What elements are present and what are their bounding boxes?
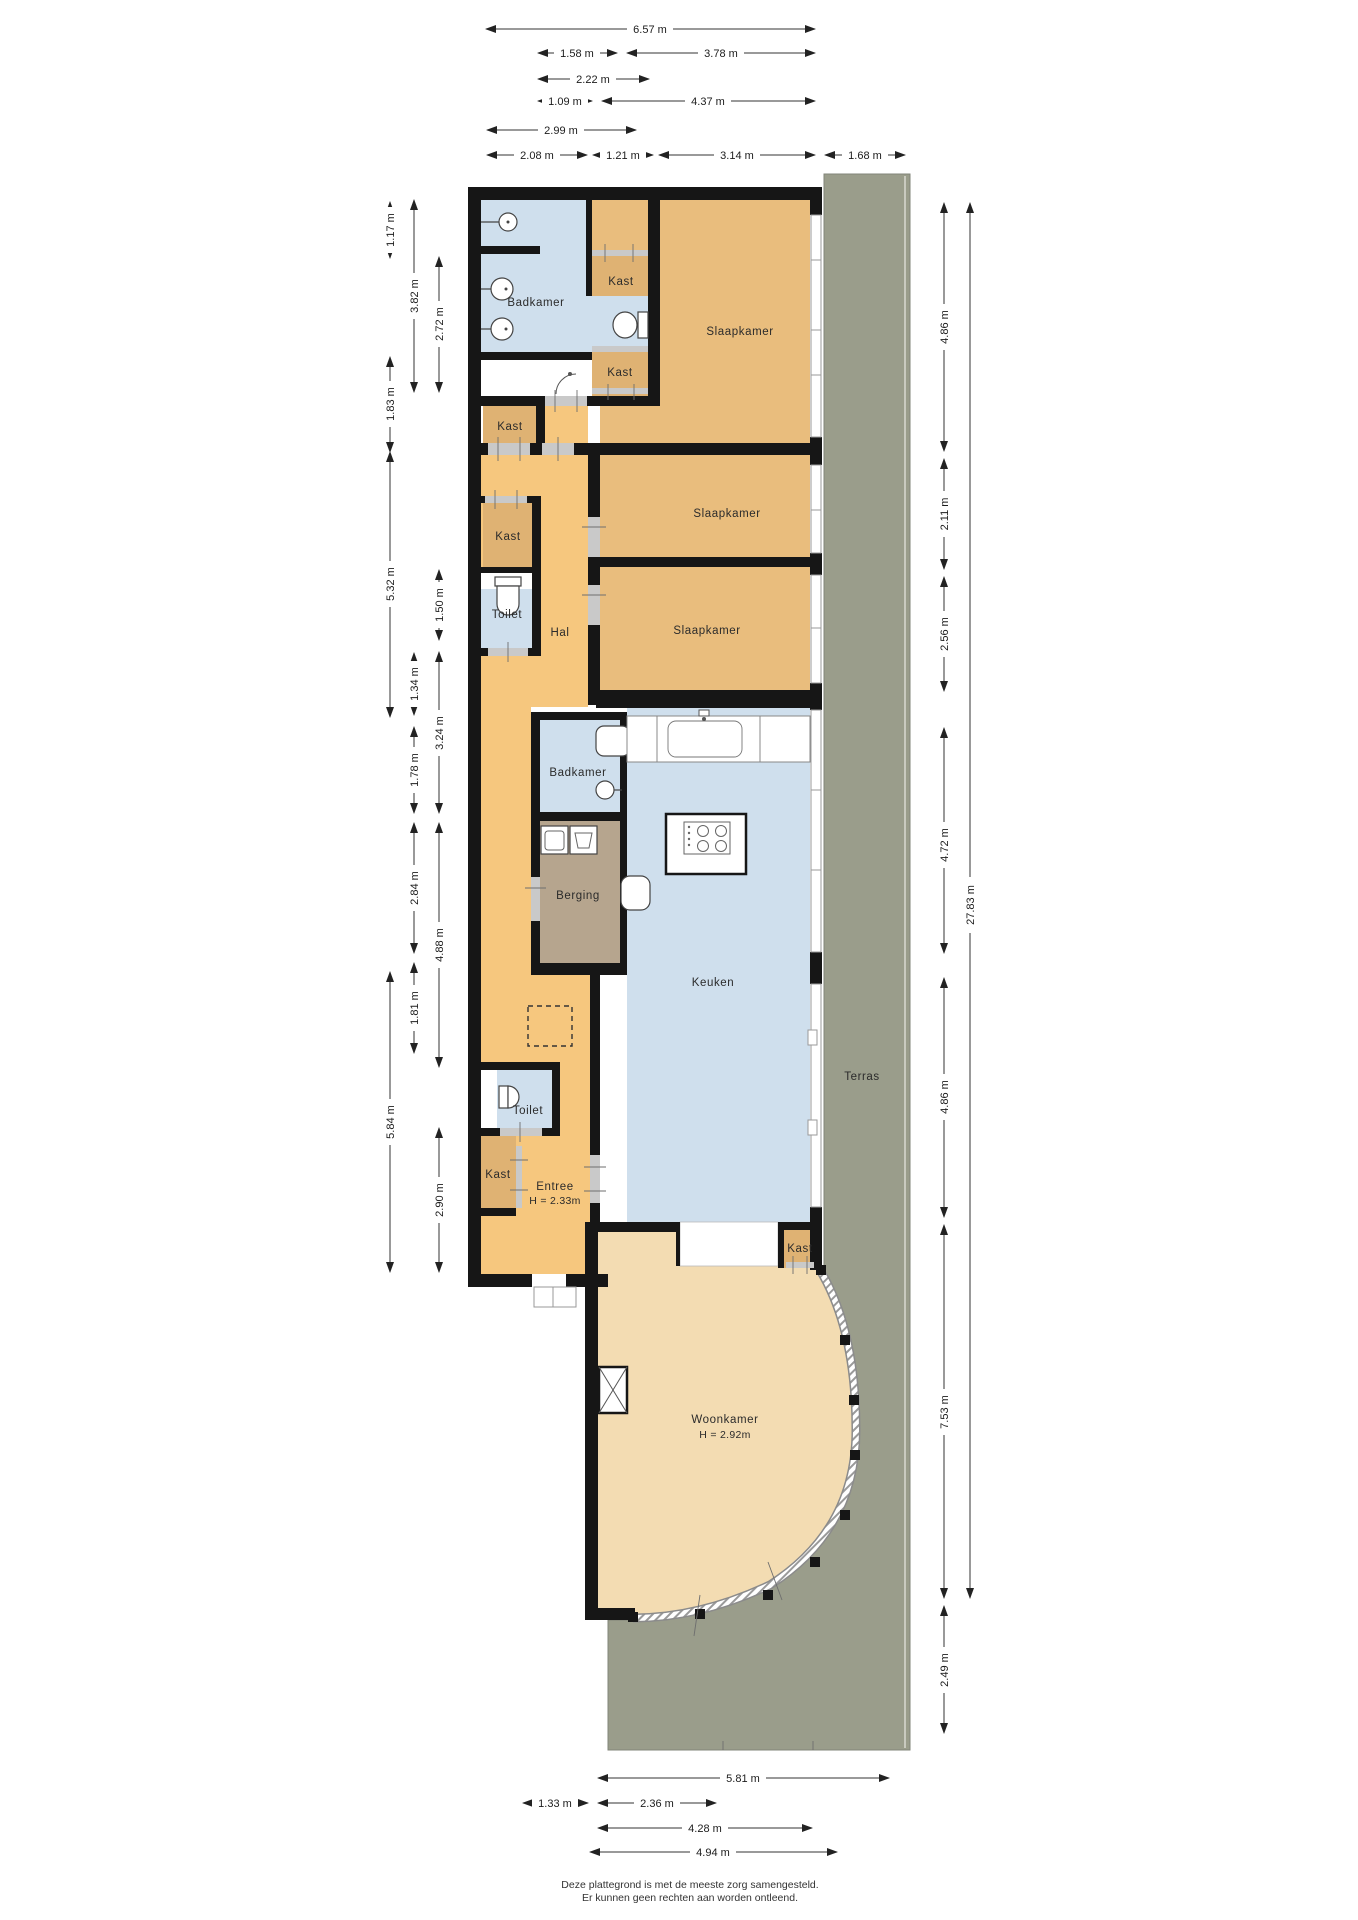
svg-text:1.21 m: 1.21 m [606,150,640,162]
kitchen-island [666,814,746,874]
svg-text:3.82 m: 3.82 m [409,279,421,313]
svg-text:2.99 m: 2.99 m [544,125,578,137]
dim: 1.68 m [825,149,905,162]
dims-top: 6.57 m 1.58 m 3.78 m 2.22 m 1.09 m 4.37 … [486,23,905,162]
svg-text:4.94 m: 4.94 m [696,1847,730,1859]
floorplan-svg: Badkamer Kast Slaapkamer Kast Kast Kast … [0,0,1358,1920]
svg-text:3.14 m: 3.14 m [720,150,754,162]
dim: 4.86 m [938,203,951,451]
dim: 5.32 m [384,452,397,717]
label-toilet-onder: Toilet [513,1105,544,1117]
dim: 4.94 m [590,1846,837,1859]
svg-text:1.09 m: 1.09 m [548,96,582,108]
utility-sink-icon [570,826,597,854]
dim: 5.84 m [384,972,397,1272]
dim: 27.83 m [964,203,977,1598]
dim: 2.90 m [433,1128,446,1272]
shaft-icon [599,1367,627,1413]
dim: 1.21 m [593,149,653,162]
dim: 2.56 m [938,577,951,691]
dim: 1.09 m [538,95,592,108]
svg-text:2.08 m: 2.08 m [520,150,554,162]
svg-text:1.17 m: 1.17 m [385,213,397,247]
svg-text:2.11 m: 2.11 m [939,498,951,531]
dim: 1.83 m [384,357,397,452]
door-swing [556,374,576,394]
svg-text:2.36 m: 2.36 m [640,1798,674,1810]
seat-icon [621,876,650,910]
svg-text:1.78 m: 1.78 m [409,753,421,787]
dim: 4.86 m [938,978,951,1217]
dim: 2.08 m [487,149,587,162]
label-slaapkamer-3: Slaapkamer [673,625,740,637]
room-keuken [627,708,810,1222]
dim: 2.36 m [598,1797,716,1810]
dim: 4.37 m [602,95,815,108]
dims-bottom: 5.81 m 1.33 m 2.36 m 4.28 m 4.94 m [523,1772,889,1859]
disclaimer: Deze plattegrond is met de meeste zorg s… [561,1879,818,1904]
toilet-icon [613,312,648,338]
dim: 1.58 m [538,47,617,60]
svg-text:5.84 m: 5.84 m [385,1105,397,1139]
dim: 2.72 m [433,257,446,392]
shower-icon [596,726,630,756]
disclaimer-line-2: Er kunnen geen rechten aan worden ontlee… [582,1892,798,1904]
dim: 3.24 m [433,652,446,813]
label-kast-1: Kast [608,276,634,288]
svg-text:4.72 m: 4.72 m [939,828,951,862]
washbasin-icon [491,318,513,340]
dims-right: 4.86 m 2.11 m 2.56 m 4.72 m 4.86 m 7.53 … [938,203,977,1733]
svg-text:27.83 m: 27.83 m [965,885,977,925]
label-slaapkamer-1: Slaapkamer [706,326,773,338]
svg-text:1.34 m: 1.34 m [409,667,421,701]
washer-icon [541,826,568,854]
svg-text:4.86 m: 4.86 m [939,310,951,344]
dim: 7.53 m [938,1225,951,1598]
label-entree: Entree [536,1181,573,1193]
dim: 2.99 m [487,124,636,137]
label-terras: Terras [844,1071,880,1083]
svg-text:4.37 m: 4.37 m [691,96,725,108]
dim: 2.11 m [938,459,951,569]
dim: 3.14 m [659,149,815,162]
svg-text:3.78 m: 3.78 m [704,48,738,60]
dims-left: 1.17 m 3.82 m 2.72 m 1.83 m 5.32 m 1.50 … [384,200,446,1272]
svg-text:5.32 m: 5.32 m [385,567,397,601]
dim: 2.22 m [538,73,649,86]
label-badkamer-boven: Badkamer [507,297,564,309]
svg-text:2.90 m: 2.90 m [434,1183,446,1217]
dim: 4.72 m [938,728,951,953]
dim: 6.57 m [486,23,815,36]
svg-text:5.81 m: 5.81 m [726,1773,760,1785]
svg-text:4.28 m: 4.28 m [688,1823,722,1835]
svg-text:6.57 m: 6.57 m [633,24,667,36]
label-hal: Hal [550,627,569,639]
label-woonkamer: Woonkamer [691,1414,758,1426]
dim: 2.49 m [938,1606,951,1733]
washbasin-icon [596,781,614,799]
svg-text:3.24 m: 3.24 m [434,716,446,750]
svg-text:1.33 m: 1.33 m [538,1798,572,1810]
label-toilet-boven: Toilet [492,609,523,621]
svg-text:2.22 m: 2.22 m [576,74,610,86]
label-kast-2: Kast [607,367,633,379]
entrance-step [534,1287,576,1307]
svg-text:2.49 m: 2.49 m [939,1653,951,1687]
svg-text:2.84 m: 2.84 m [409,871,421,905]
dim: 4.28 m [598,1822,812,1835]
label-kast-5: Kast [485,1169,511,1181]
dim: 2.84 m [408,823,421,953]
svg-text:1.50 m: 1.50 m [434,588,446,622]
dim: 1.81 m [408,963,421,1053]
kitchen-counter [627,710,810,762]
kitchen-sink-icon [668,721,742,757]
svg-text:4.88 m: 4.88 m [434,928,446,962]
doorway-niche [680,1222,778,1266]
label-keuken: Keuken [692,977,735,989]
label-woonkamer-height: H = 2.92m [699,1429,750,1441]
svg-text:1.81 m: 1.81 m [409,991,421,1025]
label-berging: Berging [556,890,600,902]
dim: 1.33 m [523,1797,588,1810]
dim: 4.88 m [433,823,446,1067]
label-entree-height: H = 2.33m [529,1195,580,1207]
label-badkamer-midden: Badkamer [549,767,606,779]
svg-text:2.56 m: 2.56 m [939,617,951,651]
svg-text:4.86 m: 4.86 m [939,1080,951,1114]
svg-text:1.68 m: 1.68 m [848,150,882,162]
dim: 5.81 m [598,1772,889,1785]
room-kast-1 [592,250,648,296]
room-slaapkamer-2 [600,455,810,557]
svg-text:7.53 m: 7.53 m [939,1395,951,1429]
label-kast-6: Kast [787,1243,813,1255]
svg-text:1.58 m: 1.58 m [560,48,594,60]
label-kast-3: Kast [497,421,523,433]
floorplan-page: Badkamer Kast Slaapkamer Kast Kast Kast … [0,0,1358,1920]
dim: 1.34 m [408,653,421,715]
svg-text:2.72 m: 2.72 m [434,307,446,341]
label-kast-4: Kast [495,531,521,543]
dim: 3.82 m [408,200,421,392]
dim: 1.17 m [384,202,397,258]
dim: 1.78 m [408,727,421,813]
label-slaapkamer-2: Slaapkamer [693,508,760,520]
disclaimer-line-1: Deze plattegrond is met de meeste zorg s… [561,1879,818,1891]
dim: 1.50 m [433,570,446,640]
dim: 3.78 m [627,47,815,60]
svg-text:1.83 m: 1.83 m [385,387,397,421]
